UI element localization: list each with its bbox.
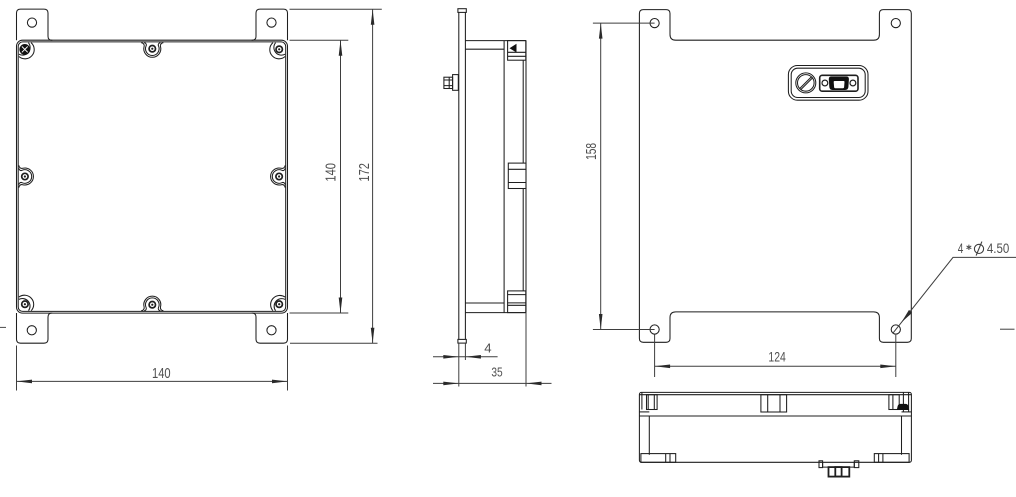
svg-text:4: 4 bbox=[484, 340, 491, 355]
svg-text:172: 172 bbox=[356, 163, 373, 182]
svg-text:4.50: 4.50 bbox=[987, 240, 1010, 256]
svg-text:124: 124 bbox=[768, 348, 786, 364]
svg-text:4: 4 bbox=[958, 240, 964, 256]
svg-text:140: 140 bbox=[323, 163, 340, 182]
svg-text:35: 35 bbox=[491, 364, 502, 379]
svg-text:158: 158 bbox=[583, 143, 600, 160]
svg-text:140: 140 bbox=[152, 365, 171, 382]
